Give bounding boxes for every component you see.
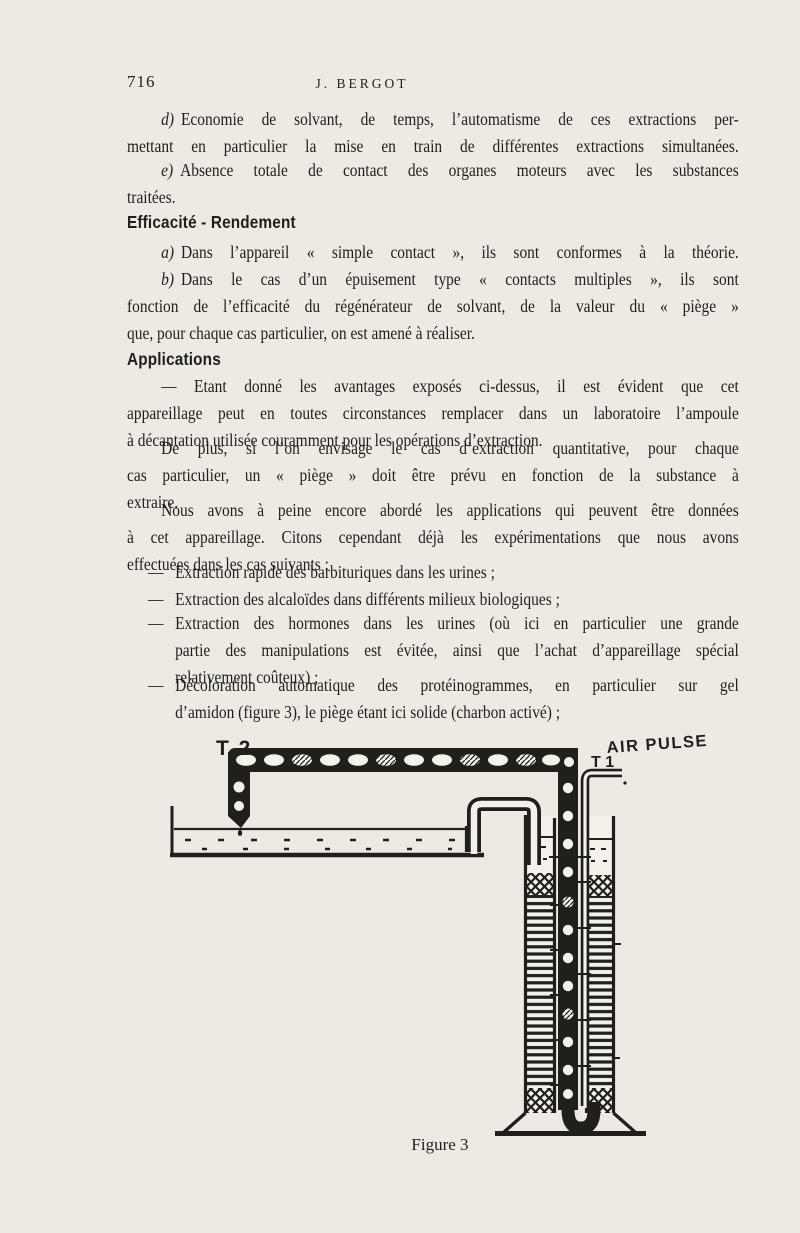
item-marker: a) (161, 242, 174, 262)
figure-caption: Figure 3 (355, 1135, 525, 1155)
running-head: J. BERGOT (262, 76, 462, 92)
paragraph-e: e)Absence totale de contact des organes … (127, 157, 739, 211)
text-line: e)Absence totale de contact des organes … (127, 157, 739, 184)
text-line: d’amidon (figure 3), le piège étant ici … (127, 699, 739, 726)
text-line: fonction de l’efficacité du régénérateur… (127, 293, 739, 320)
section-heading-efficacite: Efficacité - Rendement (127, 209, 739, 236)
solvent-tray (170, 806, 484, 855)
text-line: —Extraction des alcaloïdes dans différen… (127, 586, 739, 613)
section-heading-applications: Applications (127, 346, 739, 373)
text-line: mettant en particulier la mise en train … (127, 133, 739, 160)
text-line: que, pour chaque cas particulier, on est… (127, 320, 739, 347)
text-line: à cet appareillage. Citons cependant déj… (127, 524, 739, 551)
paragraph-b: b)Dans le cas d’un épuisement type « con… (127, 266, 739, 347)
dash-marker: — (148, 586, 163, 613)
text-line: De plus, si l’on envisage le cas d’extra… (127, 435, 739, 462)
line-text: Extraction des alcaloïdes dans différent… (175, 589, 560, 609)
figure-3-apparatus: T 2 T 1 AIR PULSE (150, 725, 720, 1140)
dash-marker: — (148, 559, 163, 586)
dash-marker: — (148, 610, 163, 637)
list-item: —Extraction rapide des barbituriques dan… (127, 559, 739, 586)
list-item: —Extraction des alcaloïdes dans différen… (127, 586, 739, 613)
line-text: Extraction des hormones dans les urines … (175, 613, 739, 633)
line-text: Extraction rapide des barbituriques dans… (175, 562, 495, 582)
text-line: appareillage peut en toutes circonstance… (127, 400, 739, 427)
label-air-pulse: AIR PULSE (606, 732, 709, 757)
line-text: Economie de solvant, de temps, l’automat… (181, 109, 739, 129)
scanned-page: 716 J. BERGOT d)Economie de solvant, de … (0, 0, 800, 1233)
line-text: Décoloration automatique des protéinogra… (175, 675, 739, 695)
text-line: —Extraction rapide des barbituriques dan… (127, 559, 739, 586)
paragraph-a: a)Dans l’appareil « simple contact », il… (127, 239, 739, 266)
text-line: b)Dans le cas d’un épuisement type « con… (127, 266, 739, 293)
text-line: d)Economie de solvant, de temps, l’autom… (127, 106, 739, 133)
item-marker: b) (161, 269, 174, 289)
text-line: traitées. (127, 184, 739, 211)
text-line: Nous avons à peine encore abordé les app… (127, 497, 739, 524)
text-line: — Etant donné les avantages exposés ci-d… (127, 373, 739, 400)
item-marker: e) (161, 160, 173, 180)
paragraph-d: d)Economie de solvant, de temps, l’autom… (127, 106, 739, 160)
text-line: partie des manipulations est évitée, ain… (127, 637, 739, 664)
line-text: Dans l’appareil « simple contact », ils … (181, 242, 739, 262)
extraction-column-right-arm (587, 815, 614, 1113)
page-number: 716 (127, 72, 156, 92)
line-text: Absence totale de contact des organes mo… (180, 160, 739, 180)
text-line: —Décoloration automatique des protéinogr… (127, 672, 739, 699)
text-line: cas particulier, un « piège » doit être … (127, 462, 739, 489)
text-line: a)Dans l’appareil « simple contact », il… (127, 239, 739, 266)
item-marker: d) (161, 109, 174, 129)
text-line: —Extraction des hormones dans les urines… (127, 610, 739, 637)
line-text: Dans le cas d’un épuisement type « conta… (181, 269, 739, 289)
dash-marker: — (148, 672, 163, 699)
list-item: —Décoloration automatique des protéinogr… (127, 672, 739, 726)
label-t2: T 2 (216, 737, 252, 760)
